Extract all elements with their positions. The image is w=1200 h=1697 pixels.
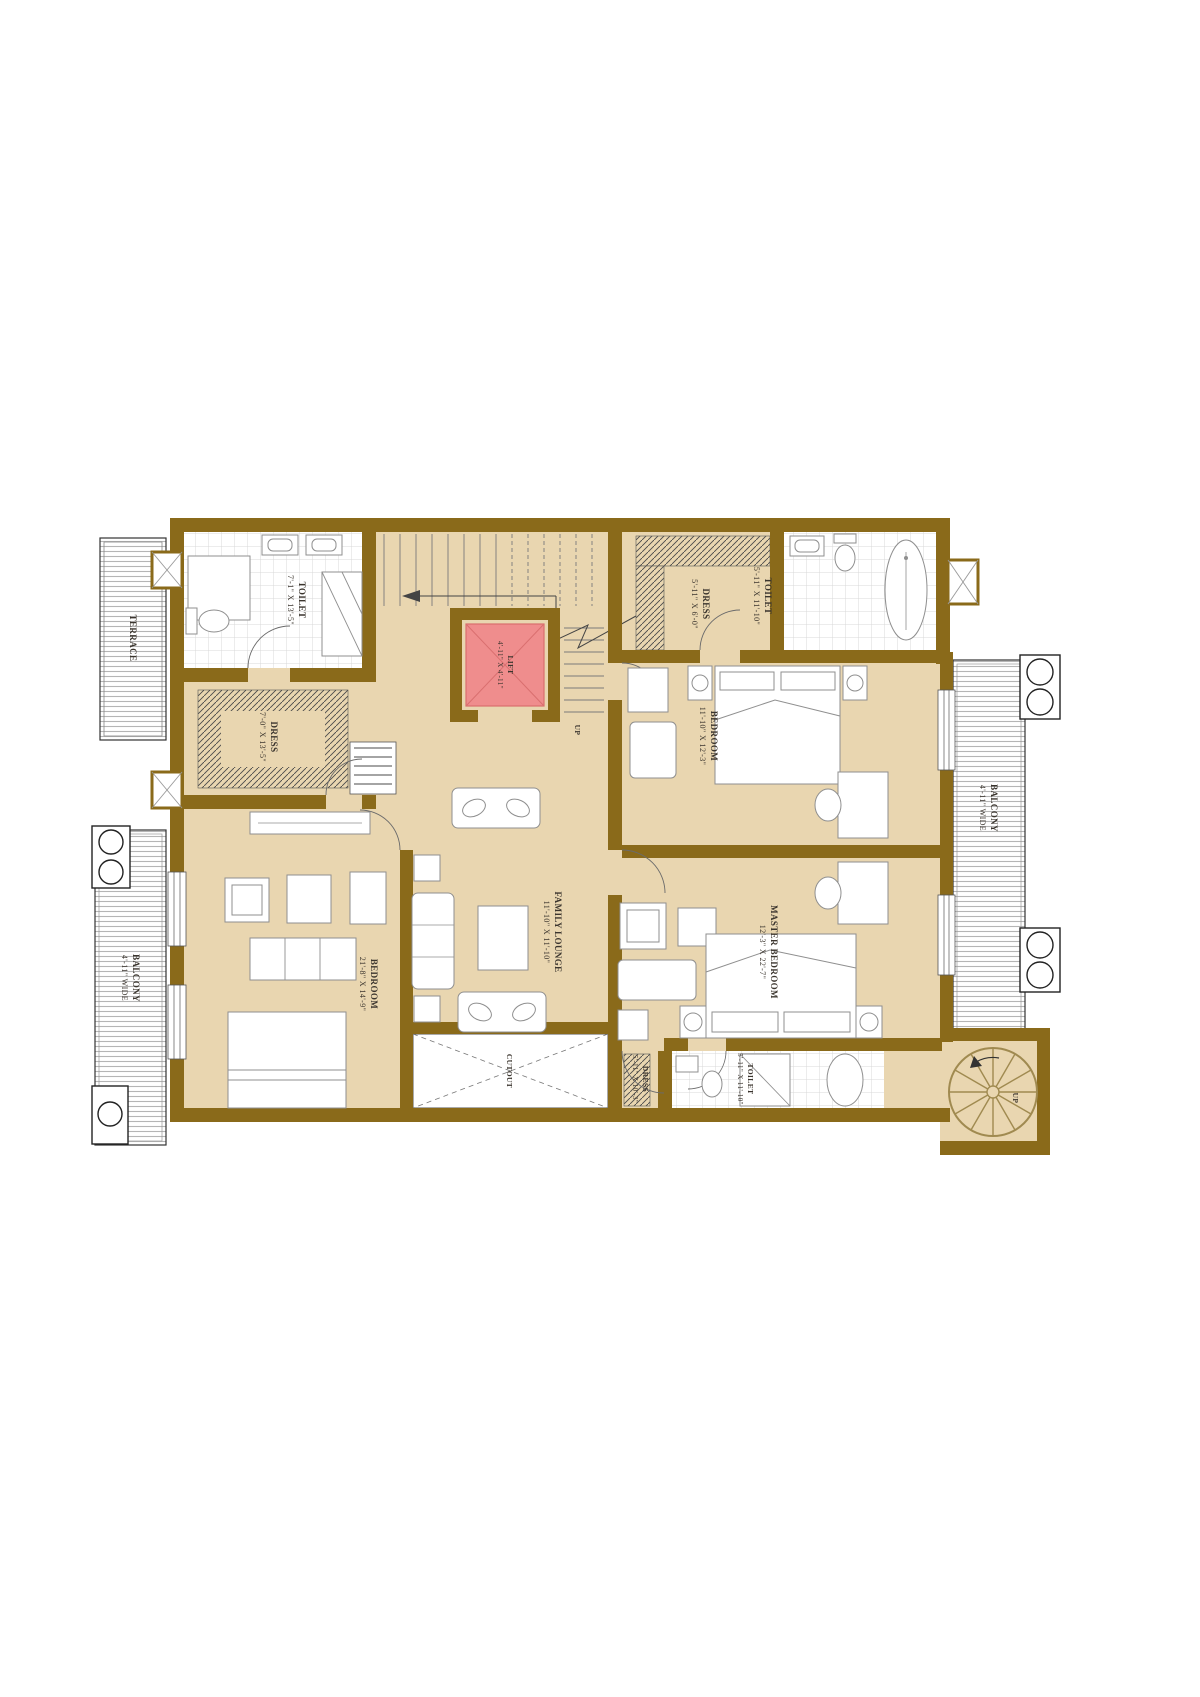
toilet-tr-label: TOILET (763, 578, 773, 615)
master-dims: 12'-3" X 22'-7" (758, 925, 767, 980)
dress-tr-dims: 5'-11" X 6'-0" (690, 579, 699, 629)
window-left-2 (168, 985, 186, 1059)
planter-box-left-top (92, 826, 130, 888)
dress-tl-label: DRESS (269, 721, 279, 752)
right-balcony-label: BALCONY (989, 784, 999, 832)
master-label: MASTER BEDROOM (769, 905, 779, 999)
bed-right (715, 666, 840, 784)
bed-master (680, 934, 882, 1038)
floor-plan-canvas: TERRACE BALCONY 4'-11" WIDE (0, 0, 1200, 1697)
stairs-up-label: UP (573, 725, 582, 736)
cutout-label: CUTOUT (505, 1054, 514, 1088)
lounge-dims: 11'-10" X 11'-10" (542, 901, 551, 964)
toilet-tl-dims: 7'-1" X 13'-5" (286, 575, 295, 625)
floor-plan-drawing: TERRACE BALCONY 4'-11" WIDE (0, 0, 1200, 1697)
planter-box-right-top (1020, 655, 1060, 719)
toilet-br-label: TOILET (746, 1063, 755, 1094)
planter-x-top-right (948, 560, 978, 604)
planter-box-right-bottom (1020, 928, 1060, 992)
right-balcony-dims: 4'-11" WIDE (978, 785, 987, 831)
window-right-2 (938, 895, 955, 975)
dress-br-dims: 5'-11" X 10'-3" (631, 1055, 639, 1103)
planter-box-left-bottom (92, 1086, 128, 1144)
bedroom-r-label: BEDROOM (709, 711, 719, 761)
bedroom-l-label: BEDROOM (369, 959, 379, 1009)
left-balcony-dims: 4'-11" WIDE (120, 955, 129, 1001)
planter-x-top-left (152, 552, 182, 588)
dress-br-label: DRESS (641, 1066, 650, 1092)
spiral-up-label: UP (1011, 1093, 1020, 1104)
toilet-br-dims: 5'-11" X 11'-10" (736, 1053, 744, 1105)
terrace-label: TERRACE (128, 615, 138, 662)
lift: LIFT 4'-11" X 4'-11" (450, 608, 560, 722)
lift-dims: 4'-11" X 4'-11" (496, 641, 504, 689)
lift-label: LIFT (506, 655, 515, 674)
bedroom-l-dims: 21'-8" X 14'-9" (358, 957, 367, 1012)
toilet-tl-label: TOILET (297, 582, 307, 619)
dress-tr-label: DRESS (701, 588, 711, 619)
cutout: CUTOUT (413, 1034, 608, 1108)
lounge-label: FAMILY LOUNGE (553, 891, 563, 972)
bed-left (228, 1012, 346, 1108)
spiral-staircase: UP (949, 1048, 1037, 1136)
dress-tl-dims: 7'-0" X 13'-5" (258, 712, 267, 762)
toilet-tr-dims: 5'-11" X 11'-10" (752, 567, 761, 625)
window-right-1 (938, 690, 955, 770)
left-balcony-label: BALCONY (131, 954, 141, 1002)
window-left-1 (168, 872, 186, 946)
corridor-closet (350, 742, 396, 794)
left-balcony: BALCONY 4'-11" WIDE (92, 826, 166, 1145)
planter-x-mid-left (152, 772, 182, 808)
bedroom-r-dims: 11'-10" X 12'-3" (698, 707, 707, 766)
